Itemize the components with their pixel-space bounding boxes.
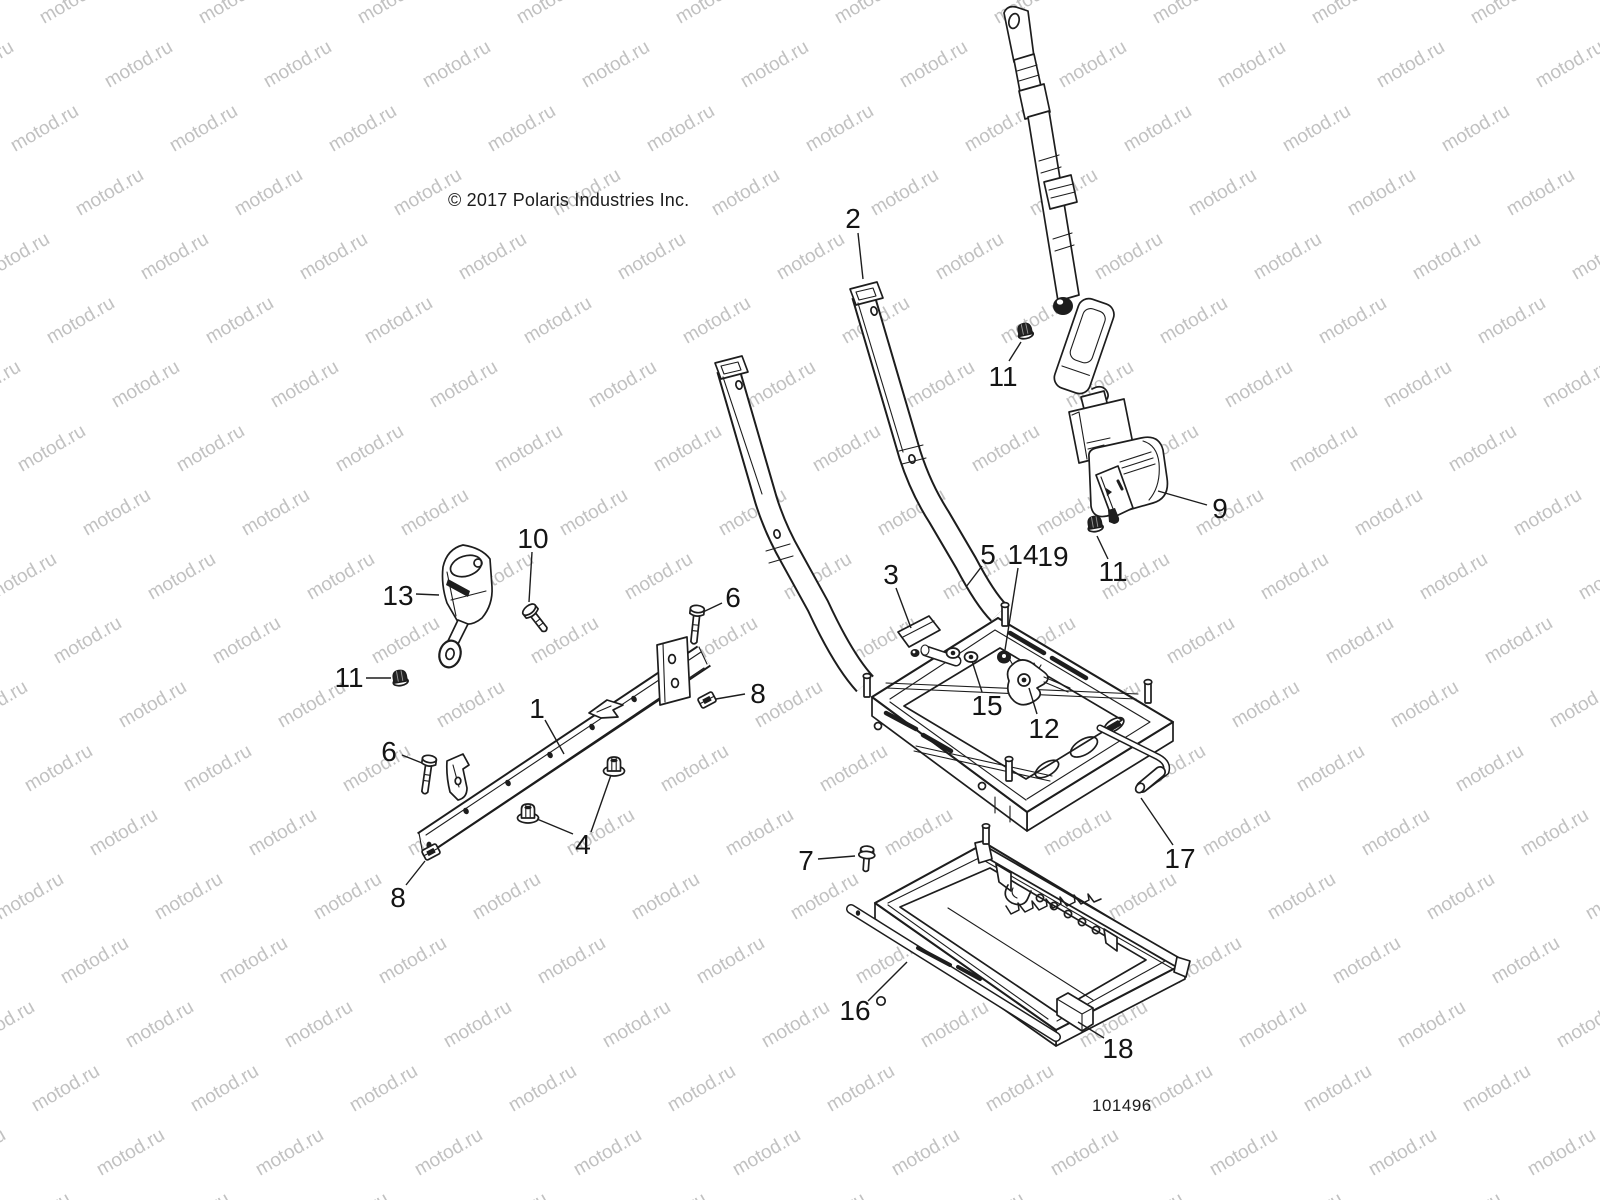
callout-label: 18 (1102, 1033, 1133, 1064)
watermark-text: motod.ru (0, 357, 24, 413)
watermark-text: motod.ru (1568, 229, 1600, 285)
watermark-text: motod.ru (36, 0, 111, 28)
watermark-text: motod.ru (816, 741, 891, 797)
watermark-text: motod.ru (1365, 1125, 1440, 1181)
watermark-text: motod.ru (643, 101, 718, 157)
watermark-text: motod.ru (513, 0, 588, 28)
watermark-text: motod.ru (888, 1125, 963, 1181)
callout-label: 6 (381, 736, 397, 767)
callout-label: 11 (988, 361, 1017, 392)
callout-label: 5 (980, 539, 996, 570)
watermark-text: motod.ru (722, 805, 797, 861)
bolt-drawing (521, 602, 552, 636)
watermark-text: motod.ru (137, 229, 212, 285)
watermark-text: motod.ru (419, 37, 494, 93)
watermark-text: motod.ru (520, 293, 595, 349)
watermark-text: motod.ru (411, 1125, 486, 1181)
watermark-text: motod.ru (1589, 1189, 1600, 1200)
callout-label: 6 (725, 582, 741, 613)
callout-label: 9 (1212, 493, 1228, 524)
watermark-text: motod.ru (0, 805, 2, 861)
watermark-text: motod.ru (881, 805, 956, 861)
watermark-text: motod.ru (296, 229, 371, 285)
watermark-text: motod.ru (28, 1061, 103, 1117)
watermark-text: motod.ru (556, 485, 631, 541)
watermark-text: motod.ru (823, 1061, 898, 1117)
watermark-text: motod.ru (1517, 805, 1592, 861)
watermark-text: motod.ru (354, 0, 429, 28)
watermark-text: motod.ru (310, 869, 385, 925)
watermark-text: motod.ru (672, 0, 747, 28)
watermark-text: motod.ru (267, 357, 342, 413)
callout-label: 11 (334, 662, 363, 693)
watermark-text: motod.ru (115, 677, 190, 733)
watermark-text: motod.ru (108, 357, 183, 413)
callout-label: 3 (883, 559, 899, 590)
watermark-text: motod.ru (1264, 869, 1339, 925)
callout-leader-line (703, 603, 722, 612)
watermark-text: motod.ru (1250, 229, 1325, 285)
watermark-text: motod.ru (896, 37, 971, 93)
watermark-text: motod.ru (1474, 293, 1549, 349)
watermark-text: motod.ru (476, 1189, 551, 1200)
watermark-text: motod.ru (1488, 933, 1563, 989)
copyright-notice: © 2017 Polaris Industries Inc. (448, 190, 689, 211)
watermark-text: motod.ru (1156, 293, 1231, 349)
watermark-text: motod.ru (968, 421, 1043, 477)
callout-label: 15 (971, 690, 1002, 721)
watermark-text: motod.ru (0, 997, 38, 1053)
watermark-text: motod.ru (1199, 805, 1274, 861)
callout-leader-line (1141, 798, 1173, 845)
watermark-text: motod.ru (794, 1189, 869, 1200)
callout-leader-line (716, 694, 745, 699)
watermark-text: motod.ru (1322, 613, 1397, 669)
watermark-text: motod.ru (1141, 1061, 1216, 1117)
watermark-text: motod.ru (1293, 741, 1368, 797)
watermark-text: motod.ru (180, 741, 255, 797)
callout-label: 11 (1098, 556, 1127, 587)
watermark-text: motod.ru (614, 229, 689, 285)
watermark-text: motod.ru (50, 613, 125, 669)
watermark-text: motod.ru (628, 869, 703, 925)
watermark-text: motod.ru (1452, 741, 1527, 797)
callout-leader-line (818, 856, 855, 859)
seat-rail-drawing (419, 637, 707, 855)
watermark-text: motod.ru (578, 37, 653, 93)
watermark-text: motod.ru (1047, 1125, 1122, 1181)
watermark-text: motod.ru (86, 805, 161, 861)
watermark-text: motod.ru (202, 293, 277, 349)
watermark-text: motod.ru (1467, 0, 1542, 28)
watermark-text: motod.ru (317, 1189, 392, 1200)
watermark-text: motod.ru (585, 357, 660, 413)
watermark-text: motod.ru (953, 1189, 1028, 1200)
callout-label: 19 (1037, 541, 1068, 572)
watermark-text: motod.ru (173, 421, 248, 477)
callout-label: 8 (750, 678, 766, 709)
callout-label: 17 (1164, 843, 1195, 874)
watermark-text: motod.ru (1481, 613, 1556, 669)
watermark-text: motod.ru (440, 997, 515, 1053)
watermark-text: motod.ru (903, 357, 978, 413)
watermark-text: motod.ru (491, 421, 566, 477)
watermark-text: motod.ru (534, 933, 609, 989)
callout-label: 13 (382, 580, 413, 611)
watermark-text: motod.ru (1112, 1189, 1187, 1200)
watermark-text: motod.ru (1539, 357, 1600, 413)
watermark-text: motod.ru (1149, 0, 1224, 28)
watermark-text: motod.ru (426, 357, 501, 413)
watermark-text: motod.ru (1445, 421, 1520, 477)
watermark-text: motod.ru (1582, 869, 1600, 925)
watermark-text: motod.ru (1423, 869, 1498, 925)
watermark-text: motod.ru (1120, 101, 1195, 157)
watermark-text: motod.ru (1257, 549, 1332, 605)
watermark-text: motod.ru (7, 101, 82, 157)
watermark-text: motod.ru (368, 613, 443, 669)
bolt-drawing (687, 605, 705, 645)
watermark-text: motod.ru (231, 165, 306, 221)
watermark-text: motod.ru (635, 1189, 710, 1200)
watermark-text: motod.ru (79, 485, 154, 541)
watermark-text: motod.ru (0, 1189, 74, 1200)
watermark-text: motod.ru (693, 933, 768, 989)
watermark-text: motod.ru (758, 997, 833, 1053)
watermark-text: motod.ru (1553, 997, 1600, 1053)
watermark-text: motod.ru (0, 677, 31, 733)
watermark-text: motod.ru (657, 741, 732, 797)
watermark-text: motod.ru (1351, 485, 1426, 541)
bolt-drawing (858, 846, 876, 872)
watermark-text: motod.ru (932, 229, 1007, 285)
watermark-text: motod.ru (216, 933, 291, 989)
watermark-text: motod.ru (773, 229, 848, 285)
callout-label: 10 (517, 523, 548, 554)
watermark-text: motod.ru (101, 37, 176, 93)
callout-leader-line (406, 861, 425, 885)
watermark-text: motod.ru (1394, 997, 1469, 1053)
watermark-text: motod.ru (1524, 1125, 1599, 1181)
watermark-text: motod.ru (744, 357, 819, 413)
flange-nut-drawing (518, 804, 539, 823)
watermark-text: motod.ru (1546, 677, 1600, 733)
watermark-text: motod.ru (737, 37, 812, 93)
watermark-text: motod.ru (1300, 1061, 1375, 1117)
watermark-text: motod.ru (1387, 677, 1462, 733)
watermark-layer: motod.rumotod.rumotod.rumotod.rumotod.ru… (0, 0, 1600, 1200)
watermark-text: motod.ru (122, 997, 197, 1053)
watermark-text: motod.ru (158, 1189, 233, 1200)
callout-label: 14 (1007, 539, 1038, 570)
watermark-text: motod.ru (21, 741, 96, 797)
watermark-text: motod.ru (1459, 1061, 1534, 1117)
watermark-text: motod.ru (650, 421, 725, 477)
callout-leader-line (416, 594, 439, 595)
watermark-text: motod.ru (195, 0, 270, 28)
watermark-text: motod.ru (166, 101, 241, 157)
watermark-text: motod.ru (151, 869, 226, 925)
watermark-text: motod.ru (679, 293, 754, 349)
callout-label: 2 (845, 203, 861, 234)
watermark-text: motod.ru (982, 1061, 1057, 1117)
watermark-text: motod.ru (72, 165, 147, 221)
watermark-text: motod.ru (0, 549, 60, 605)
watermark-text: motod.ru (1192, 485, 1267, 541)
watermark-text: motod.ru (14, 421, 89, 477)
watermark-text: motod.ru (1532, 37, 1600, 93)
callout-label: 4 (575, 829, 591, 860)
watermark-text: motod.ru (1344, 165, 1419, 221)
watermark-text: motod.ru (1163, 613, 1238, 669)
watermark-text: motod.ru (238, 485, 313, 541)
watermark-text: motod.ru (1575, 549, 1600, 605)
watermark-text: motod.ru (867, 165, 942, 221)
callout-label: 16 (839, 995, 870, 1026)
callout-label: 1 (529, 693, 545, 724)
watermark-text: motod.ru (570, 1125, 645, 1181)
watermark-text: motod.ru (1416, 549, 1491, 605)
watermark-text: motod.ru (43, 293, 118, 349)
watermark-text: motod.ru (144, 549, 219, 605)
callout-leader-line (1158, 491, 1207, 505)
watermark-text: motod.ru (1235, 997, 1310, 1053)
watermark-text: motod.ru (0, 869, 67, 925)
belt-buckle-drawing (437, 545, 493, 670)
parts-diagram-page: motod.rumotod.rumotod.rumotod.rumotod.ru… (0, 0, 1600, 1200)
callout-label: 8 (390, 882, 406, 913)
watermark-text: motod.ru (397, 485, 472, 541)
watermark-text: motod.ru (57, 933, 132, 989)
watermark-text: motod.ru (339, 741, 414, 797)
watermark-text: motod.ru (0, 37, 17, 93)
nut-drawing (1086, 515, 1103, 532)
watermark-text: motod.ru (303, 549, 378, 605)
watermark-text: motod.ru (621, 549, 696, 605)
watermark-text: motod.ru (252, 1125, 327, 1181)
watermark-text: motod.ru (1279, 101, 1354, 157)
watermark-text: motod.ru (433, 677, 508, 733)
watermark-text: motod.ru (1221, 357, 1296, 413)
callout-leader-line (858, 233, 863, 279)
watermark-text: motod.ru (1185, 165, 1260, 221)
watermark-text: motod.ru (0, 1125, 9, 1181)
watermark-text: motod.ru (1214, 37, 1289, 93)
watermark-text: motod.ru (1091, 229, 1166, 285)
watermark-text: motod.ru (361, 293, 436, 349)
diagram-number: 101496 (1092, 1096, 1152, 1116)
clip-nut-drawing (697, 691, 716, 708)
callout-label: 12 (1028, 713, 1059, 744)
watermark-text: motod.ru (1315, 293, 1390, 349)
watermark-text: motod.ru (1055, 37, 1130, 93)
watermark-text: motod.ru (484, 101, 559, 157)
watermark-text: motod.ru (1206, 1125, 1281, 1181)
watermark-text: motod.ru (1438, 101, 1513, 157)
watermark-text: motod.ru (1373, 37, 1448, 93)
watermark-text: motod.ru (1358, 805, 1433, 861)
watermark-text: motod.ru (1308, 0, 1383, 28)
watermark-text: motod.ru (917, 997, 992, 1053)
watermark-text: motod.ru (332, 421, 407, 477)
flange-nut-drawing (604, 757, 625, 776)
watermark-text: motod.ru (1105, 869, 1180, 925)
callout-leader-line (537, 819, 573, 834)
watermark-text: motod.ru (664, 1061, 739, 1117)
exploded-parts-diagram: motod.rumotod.rumotod.rumotod.rumotod.ru… (0, 0, 1600, 1200)
watermark-text: motod.ru (1286, 421, 1361, 477)
seat-base-frame-drawing (863, 603, 1173, 831)
watermark-text: motod.ru (187, 1061, 262, 1117)
watermark-text: motod.ru (469, 869, 544, 925)
watermark-text: motod.ru (375, 933, 450, 989)
watermark-text: motod.ru (325, 101, 400, 157)
watermark-text: motod.ru (245, 805, 320, 861)
watermark-text: motod.ru (729, 1125, 804, 1181)
watermark-text: motod.ru (281, 997, 356, 1053)
watermark-text: motod.ru (209, 613, 284, 669)
watermark-text: motod.ru (599, 997, 674, 1053)
watermark-text: motod.ru (1503, 165, 1578, 221)
bolt-drawing (418, 754, 437, 794)
watermark-text: motod.ru (505, 1061, 580, 1117)
watermark-text: motod.ru (1228, 677, 1303, 733)
watermark-text: motod.ru (455, 229, 530, 285)
watermark-text: motod.ru (1380, 357, 1455, 413)
watermark-text: motod.ru (802, 101, 877, 157)
watermark-text: motod.ru (708, 165, 783, 221)
watermark-text: motod.ru (1430, 1189, 1505, 1200)
watermark-text: motod.ru (809, 421, 884, 477)
watermark-text: motod.ru (1329, 933, 1404, 989)
watermark-text: motod.ru (0, 229, 53, 285)
watermark-text: motod.ru (1510, 485, 1585, 541)
watermark-text: motod.ru (1409, 229, 1484, 285)
watermark-text: motod.ru (346, 1061, 421, 1117)
watermark-text: motod.ru (787, 869, 862, 925)
nut-drawing (391, 669, 408, 686)
watermark-text: motod.ru (260, 37, 335, 93)
watermark-text: motod.ru (1271, 1189, 1346, 1200)
watermark-text: motod.ru (93, 1125, 168, 1181)
callout-label: 7 (798, 845, 814, 876)
watermark-text: motod.ru (831, 0, 906, 28)
